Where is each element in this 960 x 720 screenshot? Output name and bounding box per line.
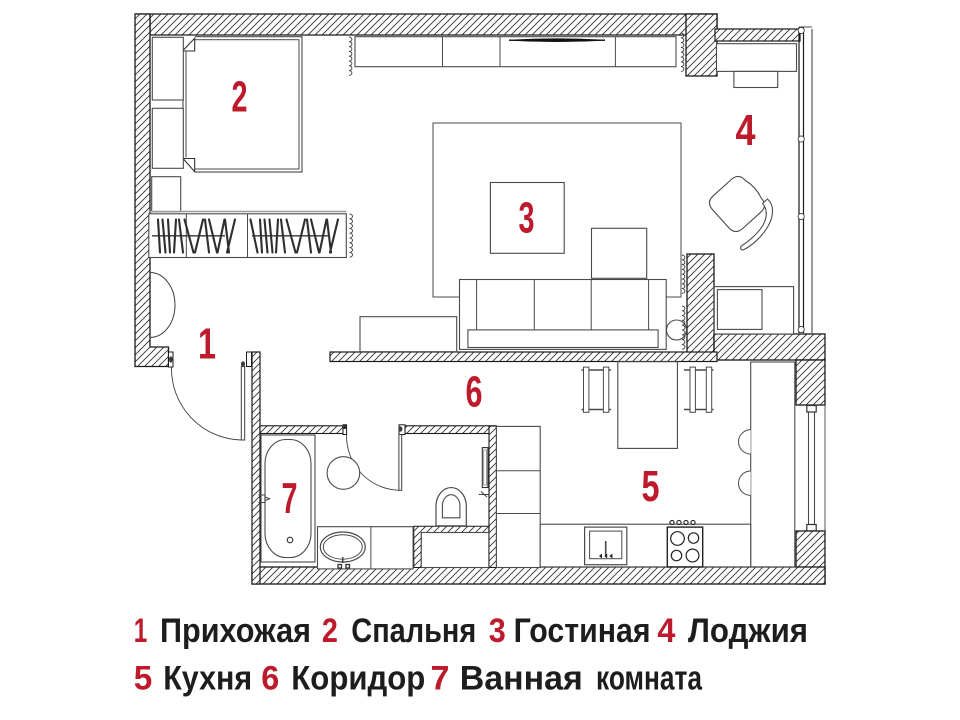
svg-text:Кухня: Кухня	[163, 660, 252, 698]
svg-text:Гостиная: Гостиная	[514, 612, 651, 650]
svg-text:7: 7	[431, 660, 450, 698]
svg-text:Лоджия: Лоджия	[688, 612, 808, 650]
svg-text:Коридор: Коридор	[291, 660, 425, 698]
svg-text:2: 2	[232, 73, 248, 122]
svg-text:6: 6	[261, 660, 279, 698]
svg-text:6: 6	[466, 368, 483, 417]
svg-text:3: 3	[519, 194, 535, 243]
svg-text:5: 5	[642, 462, 660, 511]
svg-text:Спальня: Спальня	[351, 612, 476, 650]
svg-text:7: 7	[282, 474, 298, 523]
svg-text:1: 1	[134, 612, 148, 650]
svg-text:1: 1	[198, 320, 216, 369]
svg-text:4: 4	[657, 612, 675, 650]
svg-text:2: 2	[322, 612, 338, 650]
svg-text:3: 3	[489, 612, 506, 650]
svg-text:5: 5	[134, 660, 153, 698]
svg-text:комната: комната	[596, 660, 703, 698]
svg-text:Прихожая: Прихожая	[160, 612, 311, 650]
svg-text:Ванная: Ванная	[460, 660, 583, 698]
svg-text:4: 4	[736, 106, 756, 155]
